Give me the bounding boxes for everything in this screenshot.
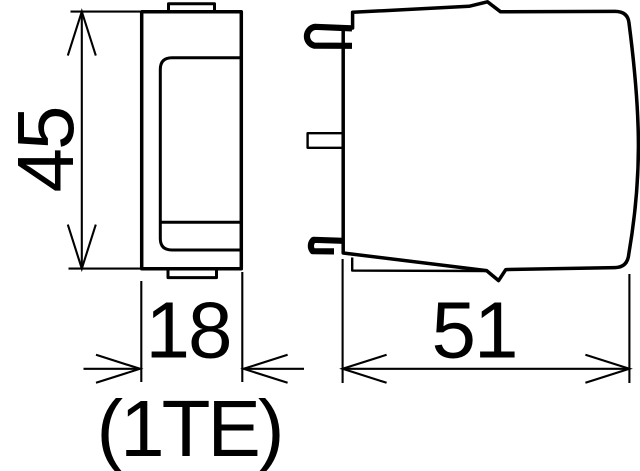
side-bottom-terminal bbox=[311, 240, 343, 252]
dimension-width: 18 (1TE) bbox=[84, 272, 305, 471]
side-view bbox=[307, 2, 638, 281]
front-top-tab bbox=[169, 4, 215, 11]
front-bottom-tab bbox=[168, 270, 217, 278]
technical-drawing: 45 18 (1TE) 51 bbox=[0, 0, 640, 471]
dimension-height: 45 bbox=[1, 12, 140, 269]
side-body-outline bbox=[343, 2, 638, 281]
front-body-outline bbox=[142, 12, 242, 269]
width-dimension-label: 18 bbox=[146, 286, 231, 375]
dimension-depth: 51 bbox=[343, 259, 630, 383]
front-view bbox=[142, 4, 242, 278]
drawing-canvas: 45 18 (1TE) 51 bbox=[0, 0, 640, 471]
height-dimension-label: 45 bbox=[1, 108, 90, 193]
width-unit-note-label: (1TE) bbox=[97, 384, 282, 471]
side-top-terminal bbox=[307, 27, 352, 46]
side-middle-terminal bbox=[308, 133, 343, 148]
depth-dimension-label: 51 bbox=[432, 286, 517, 375]
